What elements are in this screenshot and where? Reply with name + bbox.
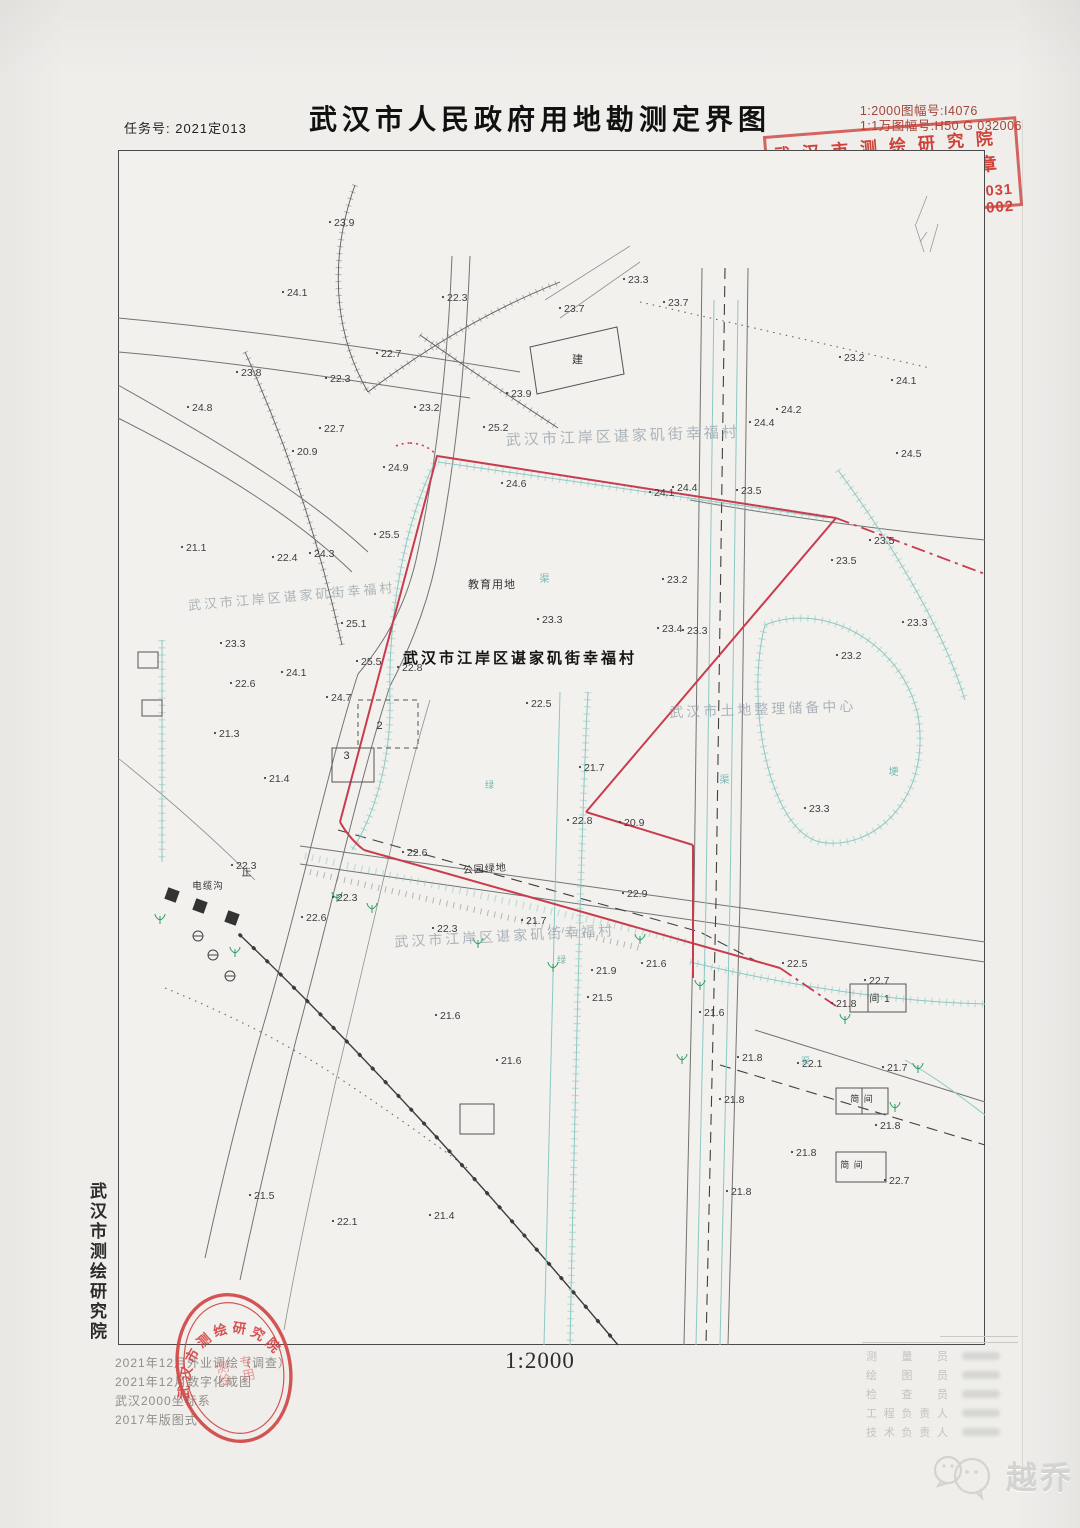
elevation-label: 21.8 xyxy=(731,1186,752,1198)
elevation-label: 22.7 xyxy=(869,975,890,987)
elevation-dot xyxy=(537,618,539,620)
elevation-label: 23.3 xyxy=(907,617,928,629)
elevation-dot xyxy=(292,450,294,452)
elevation-dot xyxy=(749,421,751,423)
elevation-dot xyxy=(282,291,284,293)
elevation-dot xyxy=(301,916,303,918)
elevation-dot xyxy=(579,766,581,768)
elevation-label: 24.6 xyxy=(506,478,527,490)
elevation-dot xyxy=(220,642,222,644)
tree-icon xyxy=(635,934,645,944)
elevation-dot xyxy=(376,352,378,354)
elevation-dot xyxy=(882,1066,884,1068)
tree-icon xyxy=(913,1063,923,1073)
chat-bubbles-logo-icon xyxy=(928,1446,1000,1504)
elevation-dot xyxy=(797,1062,799,1064)
elevation-label: 21.8 xyxy=(742,1052,763,1064)
pylon-line xyxy=(930,224,938,252)
elevation-dot xyxy=(663,301,665,303)
elevation-label: 24.9 xyxy=(388,462,409,474)
elevation-label: 23.3 xyxy=(225,638,246,650)
elevation-label: 22.6 xyxy=(407,847,428,859)
elevation-dot xyxy=(622,892,624,894)
elevation-label: 21.4 xyxy=(269,773,290,785)
watermark: 越乔 xyxy=(928,1446,1074,1504)
elevation-label: 21.6 xyxy=(501,1055,522,1067)
elevation-label: 22.3 xyxy=(447,292,468,304)
elevation-label: 23.3 xyxy=(628,274,649,286)
map-label: 武汉市江岸区谌家矶街幸福村 xyxy=(394,922,616,950)
sig-role: 技术负责人 xyxy=(866,1424,948,1440)
elevation-dot xyxy=(332,1220,334,1222)
map-label: 教育用地 xyxy=(468,577,516,591)
elevation-label: 24.4 xyxy=(677,482,698,494)
elevation-dot xyxy=(383,466,385,468)
elevation-label: 23.3 xyxy=(687,625,708,637)
elevation-label: 21.8 xyxy=(796,1147,817,1159)
elevation-dot xyxy=(526,702,528,704)
elevation-dot xyxy=(869,539,871,541)
map-label: 3 xyxy=(343,750,350,762)
elevation-label: 22.8 xyxy=(572,815,593,827)
elevation-label: 23.2 xyxy=(667,574,688,586)
elevation-label: 21.8 xyxy=(880,1120,901,1132)
tree-icon xyxy=(840,1014,850,1024)
elevation-label: 22.1 xyxy=(337,1216,358,1228)
elevation-label: 21.5 xyxy=(592,992,613,1004)
sig-name-smudge xyxy=(962,1371,1000,1379)
elevation-dot xyxy=(737,1056,739,1058)
map-label: 绿 xyxy=(557,954,567,965)
elevation-label: 24.8 xyxy=(192,402,213,414)
elevation-dot xyxy=(341,622,343,624)
elevation-dot xyxy=(187,406,189,408)
elevation-dot xyxy=(864,979,866,981)
tree-icon xyxy=(890,1102,900,1112)
elevation-label: 21.3 xyxy=(219,728,240,740)
map-label: 渠 xyxy=(540,573,551,585)
utility-box-icon xyxy=(192,898,207,913)
elevation-dot xyxy=(776,408,778,410)
elevation-label: 21.6 xyxy=(440,1010,461,1022)
map-label: 武汉市土地整理储备中心 xyxy=(669,698,856,721)
elevation-dot xyxy=(836,654,838,656)
elevation-label: 20.9 xyxy=(624,817,645,829)
sig-name-smudge xyxy=(962,1409,1000,1417)
elevation-dot xyxy=(249,1194,251,1196)
tree-icon xyxy=(677,1054,687,1064)
sig-name-smudge xyxy=(962,1352,1000,1360)
elevation-dot xyxy=(831,559,833,561)
elevation-label: 21.6 xyxy=(704,1007,725,1019)
sig-name-smudge xyxy=(962,1428,1000,1436)
elevation-label: 24.1 xyxy=(654,487,675,499)
elevation-dot xyxy=(896,452,898,454)
elevation-label: 24.3 xyxy=(314,548,335,560)
elevation-label: 23.4 xyxy=(662,623,683,635)
elevation-dot xyxy=(891,379,893,381)
elevation-dot xyxy=(591,969,593,971)
elevation-dot xyxy=(309,552,311,554)
elevation-label: 20.9 xyxy=(297,446,318,458)
map-label: 电缆沟 xyxy=(192,880,224,892)
elevation-dot xyxy=(442,296,444,298)
utility-box-icon xyxy=(224,910,239,925)
sig-role: 工程负责人 xyxy=(866,1405,948,1421)
elevation-dot xyxy=(402,851,404,853)
elevation-label: 24.1 xyxy=(286,667,307,679)
elevation-label: 24.1 xyxy=(896,375,917,387)
elevation-dot xyxy=(272,556,274,558)
sig-role: 测量员 xyxy=(866,1348,948,1364)
elevation-dot xyxy=(649,491,651,493)
elevation-label: 22.7 xyxy=(324,423,345,435)
map-label: 渠 xyxy=(720,774,731,786)
elevation-label: 23.9 xyxy=(334,217,355,229)
map-label: 武汉市江岸区谌家矶街幸福村 xyxy=(506,424,740,449)
elevation-label: 22.7 xyxy=(889,1175,910,1187)
elevation-dot xyxy=(231,864,233,866)
elevation-label: 23.3 xyxy=(809,803,830,815)
elevation-label: 21.4 xyxy=(434,1210,455,1222)
elevation-dot xyxy=(319,427,321,429)
pylon-line xyxy=(920,232,927,242)
utility-symbols xyxy=(164,887,239,981)
elevation-dot xyxy=(662,578,664,580)
map-label: 埂 xyxy=(889,766,900,778)
elevation-dot xyxy=(623,278,625,280)
elevation-dot xyxy=(397,666,399,668)
map-label: 简 间 xyxy=(840,1159,864,1170)
elevation-dot xyxy=(236,371,238,373)
elevation-dot xyxy=(682,629,684,631)
elevation-dot xyxy=(506,392,508,394)
elevation-label: 21.1 xyxy=(186,542,207,554)
map-label: 渠 xyxy=(801,1055,811,1066)
elevation-dot xyxy=(432,927,434,929)
elevation-dot xyxy=(902,621,904,623)
elevation-label: 22.7 xyxy=(381,348,402,360)
elevation-label: 23.3 xyxy=(542,614,563,626)
elevation-dot xyxy=(374,533,376,535)
elevation-label: 23.5 xyxy=(741,485,762,497)
elevation-label: 21.7 xyxy=(584,762,605,774)
elevation-dot xyxy=(281,671,283,673)
watermark-text: 越乔 xyxy=(1006,1453,1074,1498)
elevation-dot xyxy=(831,1002,833,1004)
elevation-dot xyxy=(264,777,266,779)
elevation-label: 22.6 xyxy=(306,912,327,924)
signature-rule xyxy=(940,1336,1018,1337)
elevation-dot xyxy=(726,1190,728,1192)
map-label: 建 xyxy=(572,352,584,366)
elevation-dot xyxy=(875,1124,877,1126)
elevation-label: 21.8 xyxy=(724,1094,745,1106)
elevation-dot xyxy=(496,1059,498,1061)
elevation-dot xyxy=(782,962,784,964)
tree-icon xyxy=(230,947,240,957)
elevation-label: 24.1 xyxy=(287,287,308,299)
elevation-dot xyxy=(559,307,561,309)
map-label: 2 xyxy=(376,720,383,732)
elevation-dot xyxy=(641,962,643,964)
pylon-line xyxy=(916,196,927,224)
elevation-dot xyxy=(804,807,806,809)
elevation-dot xyxy=(657,627,659,629)
elevation-dot xyxy=(567,819,569,821)
elevation-dot xyxy=(619,821,621,823)
signature-block: 测量员 绘图员 检查员 工程负责人 技术负责人 xyxy=(866,1346,1000,1441)
elevation-dot xyxy=(483,426,485,428)
utility-box-icon xyxy=(164,887,179,902)
elevation-dot xyxy=(214,732,216,734)
elevation-label: 23.9 xyxy=(511,388,532,400)
elevation-dot xyxy=(325,377,327,379)
institute-name-vertical: 武汉市测绘研究院 xyxy=(84,1182,109,1352)
map-label: 武汉市江岸区谌家矶街幸福村 xyxy=(187,580,396,613)
elevation-dot xyxy=(884,1179,886,1181)
power-pylon-icon xyxy=(915,196,938,252)
tree-icon xyxy=(155,914,165,924)
elevation-label: 21.5 xyxy=(254,1190,275,1202)
elevation-dot xyxy=(356,660,358,662)
elevation-dot xyxy=(791,1151,793,1153)
map-label: 间 1 xyxy=(869,992,890,1005)
elevation-label: 24.2 xyxy=(781,404,802,416)
elevation-label: 22.4 xyxy=(277,552,298,564)
map-label: 简 间 xyxy=(850,1093,874,1104)
tree-icon xyxy=(695,980,705,990)
map-label: 绿 xyxy=(485,779,495,790)
elevation-label: 23.2 xyxy=(844,352,865,364)
elevation-label: 21.9 xyxy=(596,965,617,977)
map-label: 止 xyxy=(242,867,253,879)
elevation-dot xyxy=(429,1214,431,1216)
elevation-label: 24.5 xyxy=(901,448,922,460)
elevation-label: 25.5 xyxy=(379,529,400,541)
elevation-label: 23.2 xyxy=(841,650,862,662)
sig-role: 检查员 xyxy=(866,1386,948,1402)
elevation-label: 25.1 xyxy=(346,618,367,630)
elevation-label: 23.5 xyxy=(836,555,857,567)
elevation-label: 23.8 xyxy=(241,367,262,379)
elevation-label: 24.7 xyxy=(331,692,352,704)
elevation-dot xyxy=(719,1098,721,1100)
elevation-dot xyxy=(736,489,738,491)
elevation-label: 23.5 xyxy=(874,535,895,547)
elevation-dot xyxy=(230,682,232,684)
elevation-dot xyxy=(329,221,331,223)
elevation-dot xyxy=(699,1011,701,1013)
elevation-dot xyxy=(332,896,334,898)
elevation-label: 21.8 xyxy=(836,998,857,1010)
elevation-dot xyxy=(501,482,503,484)
elevation-dot xyxy=(435,1014,437,1016)
elevation-label: 23.7 xyxy=(668,297,689,309)
elevation-label: 22.6 xyxy=(235,678,256,690)
map-label: 武汉市江岸区谌家矶街幸福村 xyxy=(403,649,637,667)
elevation-label: 25.5 xyxy=(361,656,382,668)
elevation-label: 21.6 xyxy=(646,958,667,970)
elevation-dot xyxy=(326,696,328,698)
elevation-label: 22.5 xyxy=(787,958,808,970)
sig-name-smudge xyxy=(962,1390,1000,1398)
scanned-survey-map-page: 任务号: 2021定013 武汉市人民政府用地勘测定界图 1:2000图幅号:I… xyxy=(0,0,1080,1528)
elevation-label: 23.7 xyxy=(564,303,585,315)
elevation-label: 22.3 xyxy=(330,373,351,385)
elevation-label: 22.9 xyxy=(627,888,648,900)
elevation-label: 22.5 xyxy=(531,698,552,710)
elevation-label: 23.2 xyxy=(419,402,440,414)
elevation-dot xyxy=(839,356,841,358)
elevation-dot xyxy=(414,406,416,408)
sig-role: 绘图员 xyxy=(866,1367,948,1383)
elevation-label: 22.3 xyxy=(337,892,358,904)
elevation-dot xyxy=(587,996,589,998)
elevation-label: 21.7 xyxy=(887,1062,908,1074)
elevation-dot xyxy=(181,546,183,548)
elevation-label: 24.4 xyxy=(754,417,775,429)
elevation-dot xyxy=(521,919,523,921)
signature-rule xyxy=(862,1342,1018,1343)
elevation-labels: 23.924.123.323.723.723.224.122.322.722.3… xyxy=(181,217,928,1228)
